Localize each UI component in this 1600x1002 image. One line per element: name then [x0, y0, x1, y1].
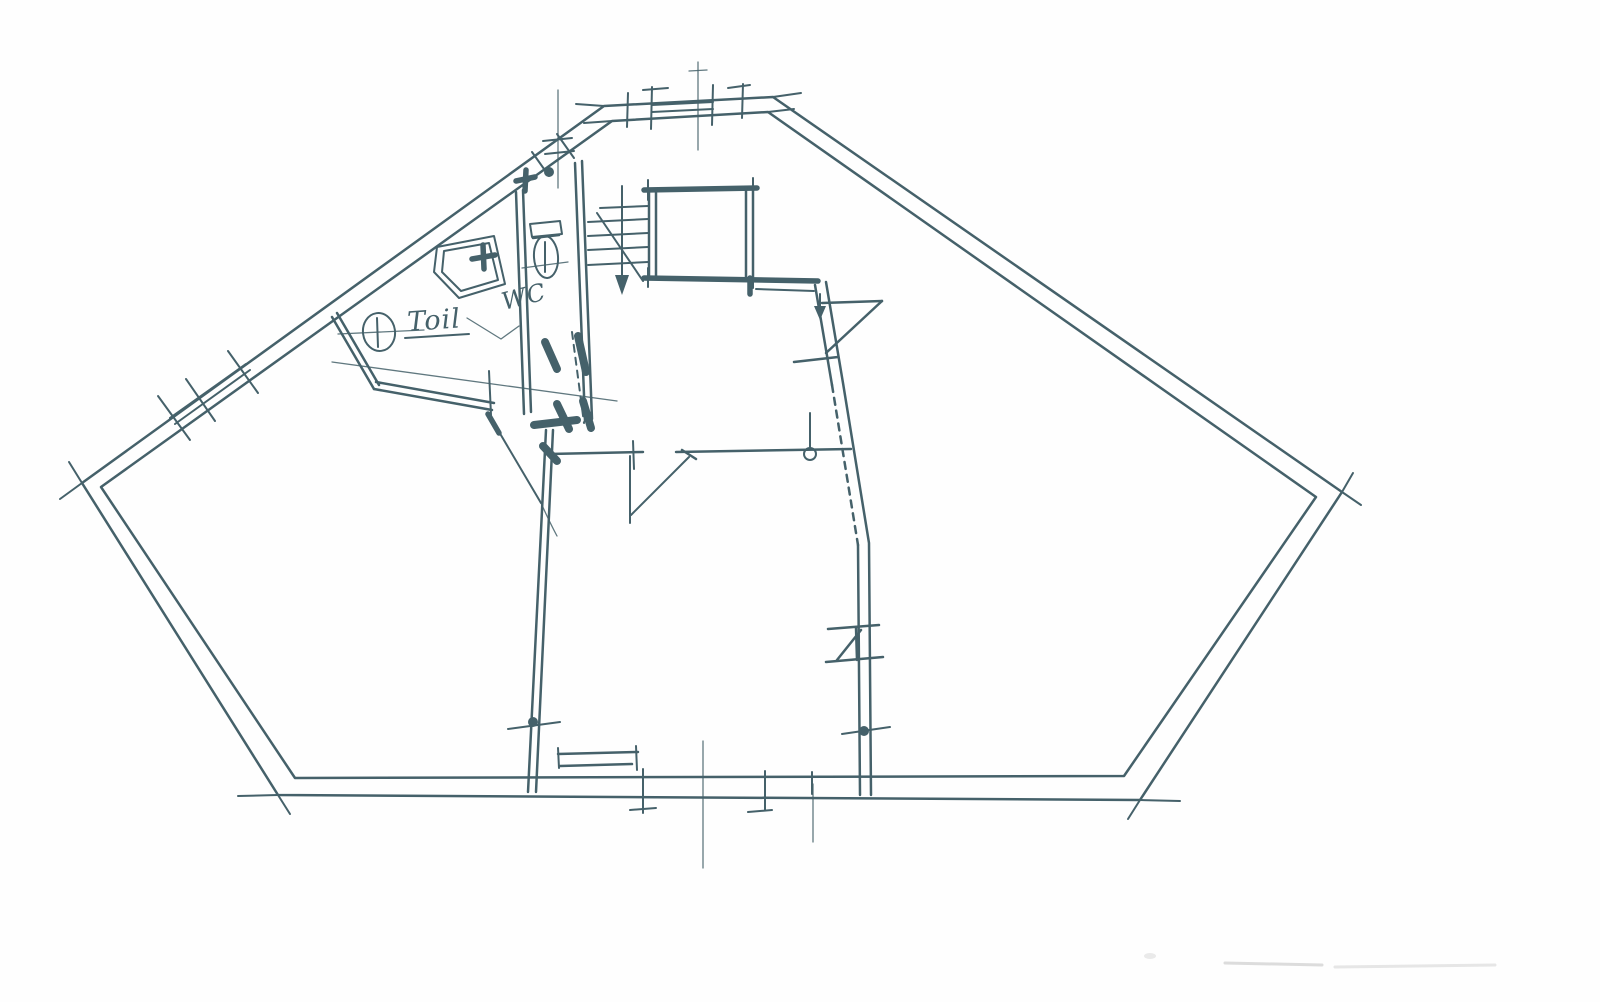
toilet-room-label: Toil — [406, 303, 461, 338]
interior-walls — [332, 161, 883, 795]
top-window — [627, 62, 750, 150]
corner-overshoots — [60, 93, 1361, 819]
stairs — [588, 186, 648, 295]
stairs-down-arrow — [615, 186, 629, 295]
outer-wall-outline — [82, 97, 1342, 800]
entry-post-blob — [544, 167, 554, 177]
left-diagonal-windows — [158, 90, 574, 440]
inner-wall-outline — [101, 112, 1316, 778]
wc-toilet — [522, 221, 568, 279]
toil-label-leader — [467, 318, 519, 339]
scan-artifacts — [1144, 953, 1495, 967]
shower-tray — [434, 236, 505, 298]
wc-room-label: WC — [499, 278, 549, 316]
stair-shaft — [644, 178, 818, 294]
radiator — [558, 746, 638, 770]
wc-right-wall — [575, 161, 592, 428]
floor-plan-sketch: Toil WC — [0, 0, 1600, 1002]
outer-walls — [60, 93, 1361, 819]
mid-room-door-swing — [630, 450, 696, 523]
bottom-wall-details — [508, 717, 890, 868]
scanned-floor-plan-sheet: Toil WC — [0, 0, 1600, 1002]
wall-opening-symbol — [826, 625, 883, 662]
